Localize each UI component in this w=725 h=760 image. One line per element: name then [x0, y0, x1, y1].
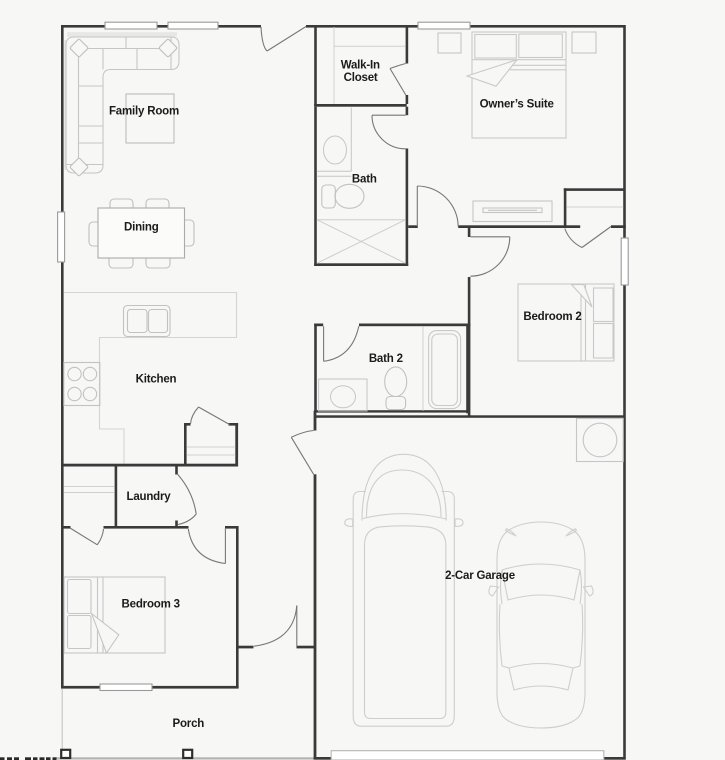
svg-text:Closet: Closet: [344, 72, 378, 84]
svg-text:Bath: Bath: [352, 173, 377, 185]
svg-text:Bedroom 3: Bedroom 3: [122, 598, 180, 610]
svg-text:Dining: Dining: [124, 222, 159, 234]
svg-text:Walk-In: Walk-In: [341, 60, 380, 72]
svg-text:Porch: Porch: [173, 718, 205, 730]
svg-text:Owner’s Suite: Owner’s Suite: [480, 98, 554, 110]
svg-text:Kitchen: Kitchen: [136, 373, 177, 385]
svg-text:Laundry: Laundry: [127, 491, 172, 503]
svg-text:Bedroom 2: Bedroom 2: [523, 311, 581, 323]
svg-text:Family Room: Family Room: [109, 105, 179, 117]
svg-text:Bath 2: Bath 2: [369, 353, 403, 365]
svg-text:2-Car Garage: 2-Car Garage: [445, 570, 515, 582]
